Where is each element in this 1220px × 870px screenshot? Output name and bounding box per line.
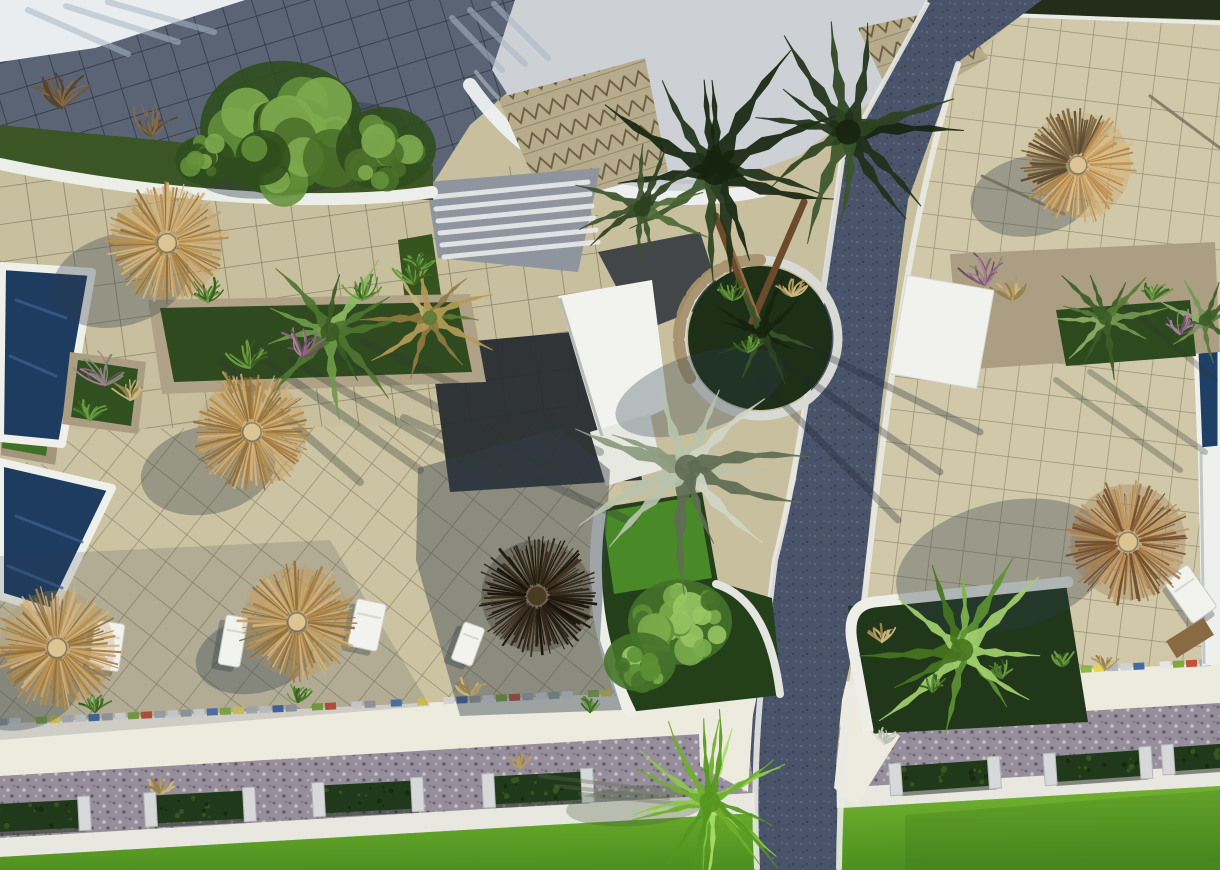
scene-canvas: [0, 0, 1220, 870]
sunlit-lawn-patch: [602, 496, 712, 594]
right-edge-pool: [1196, 346, 1220, 450]
white-shade-panel: [890, 275, 994, 389]
aerial-resort-render: [0, 0, 1220, 870]
